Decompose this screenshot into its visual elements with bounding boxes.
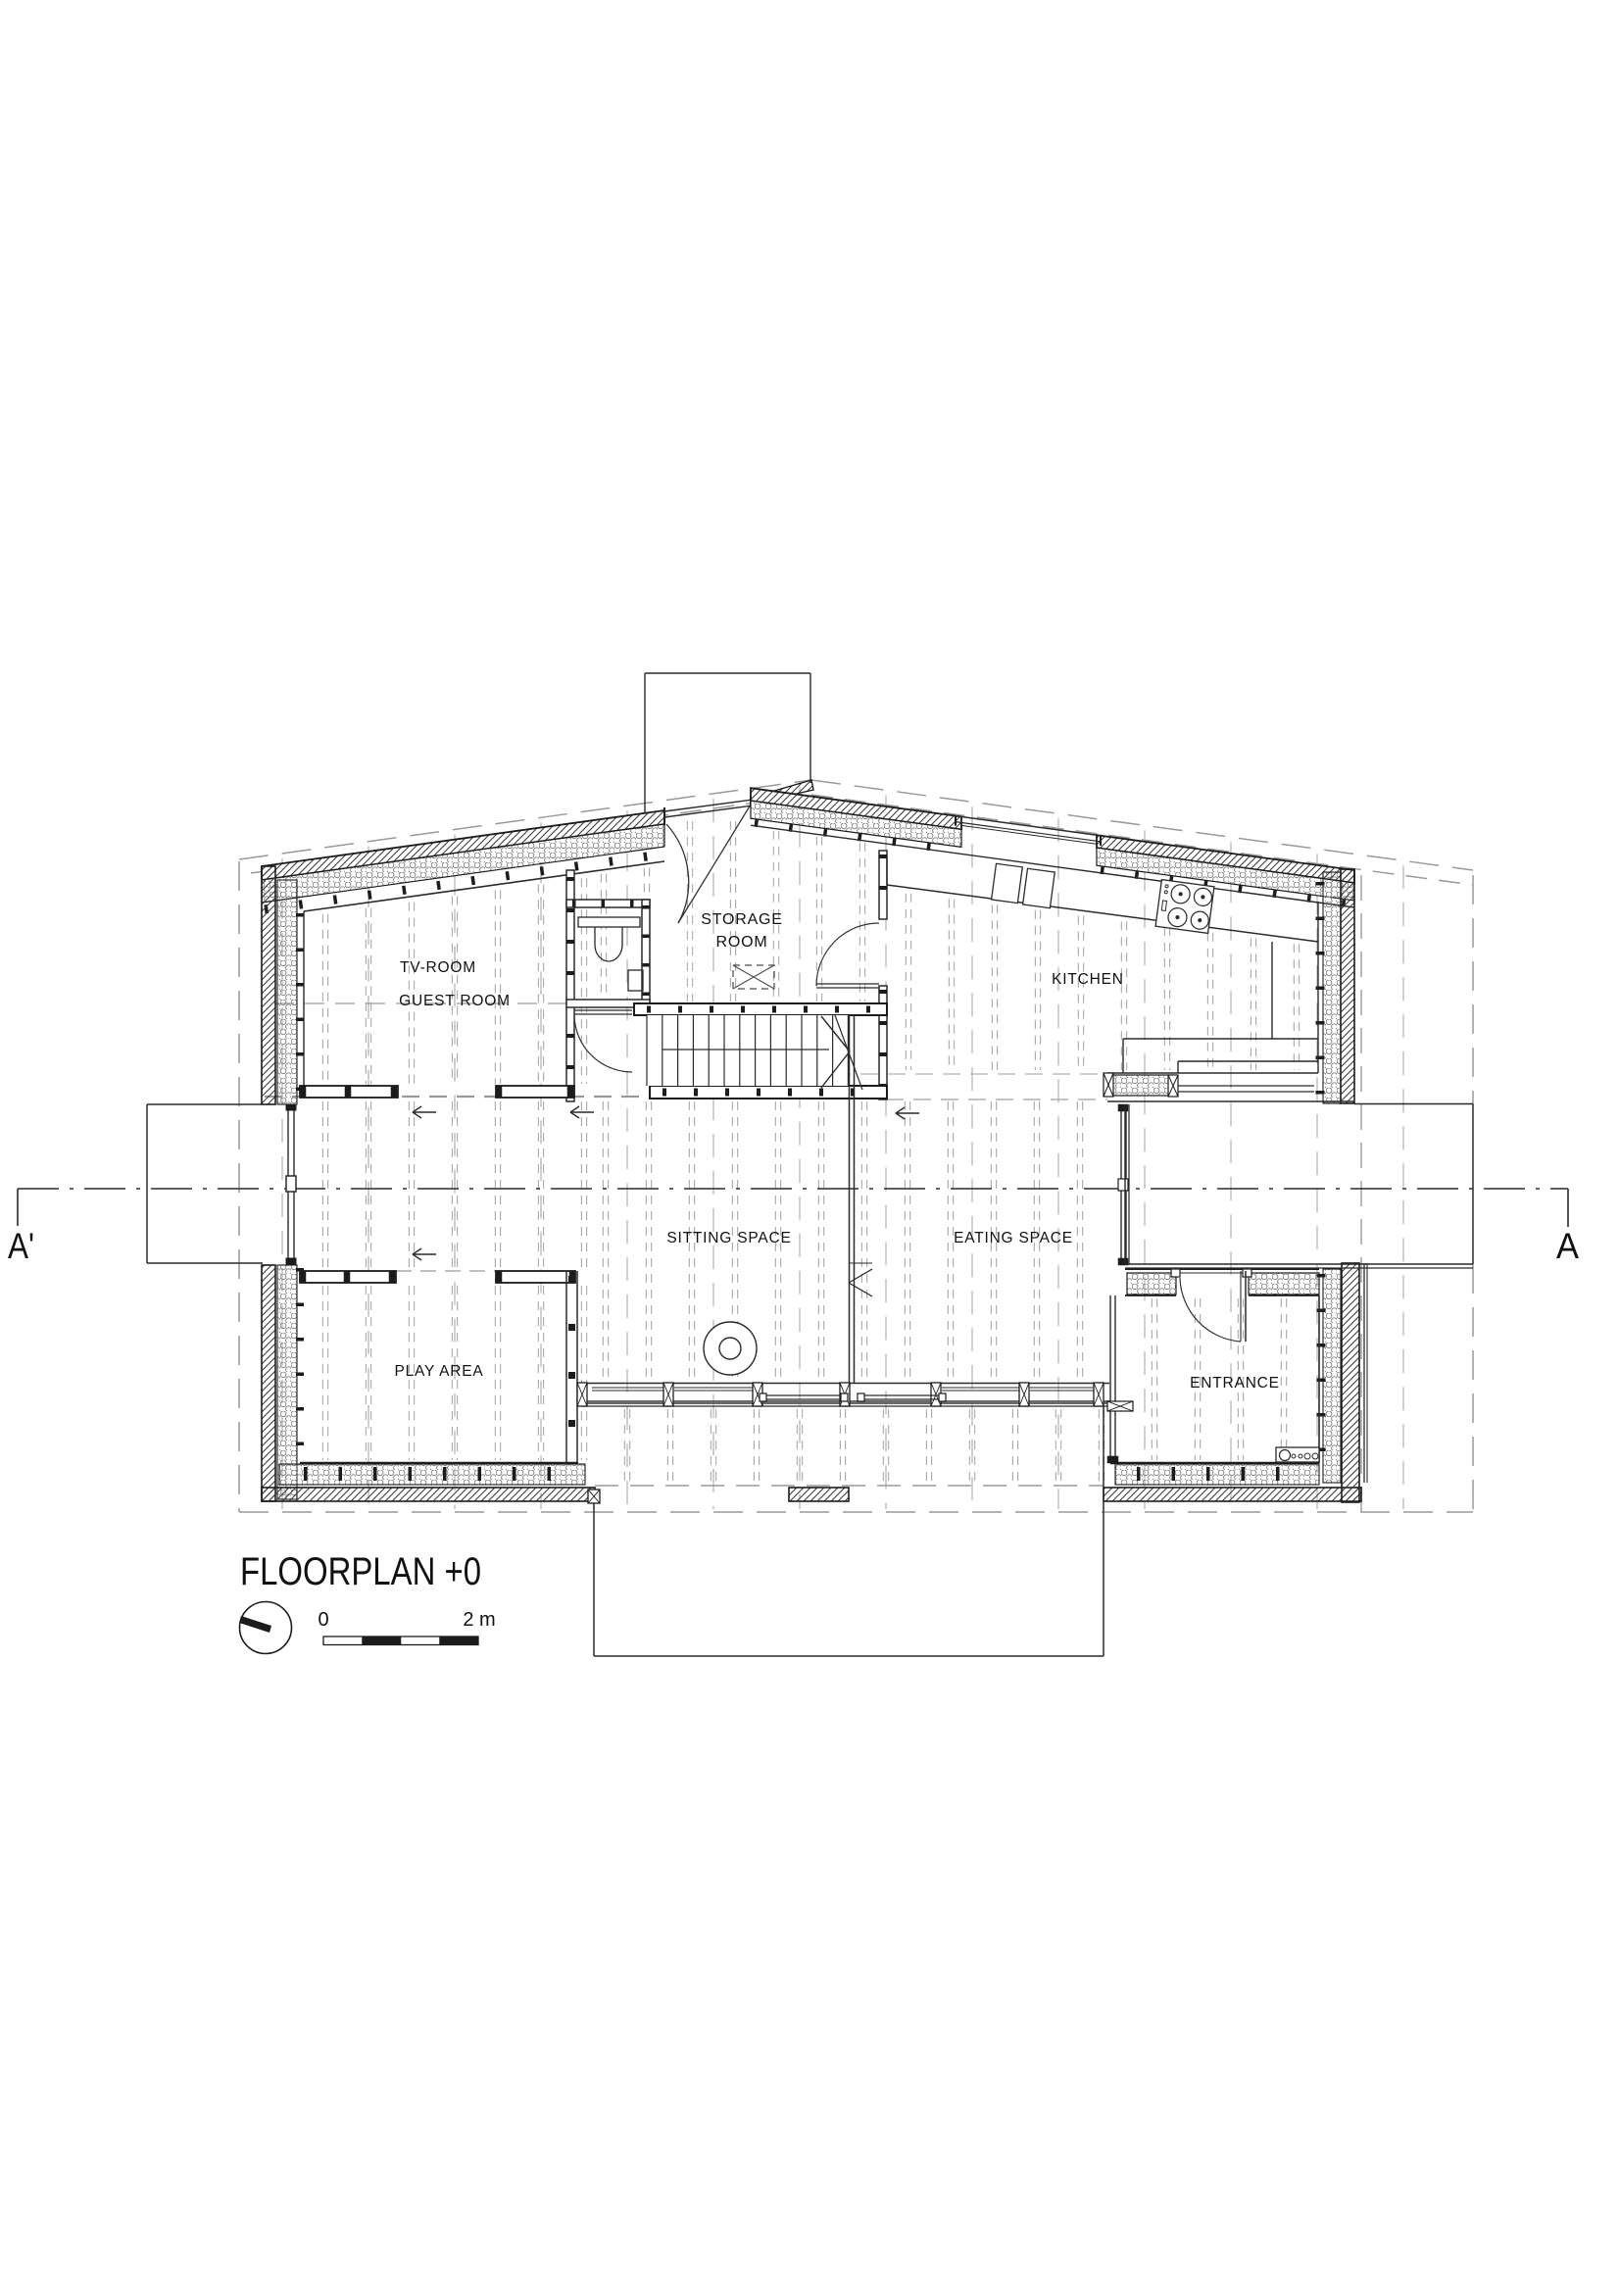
svg-text:FLOORPLAN +0: FLOORPLAN +0 [240, 1550, 481, 1593]
svg-text:ROOM: ROOM [716, 934, 768, 951]
svg-text:PLAY AREA: PLAY AREA [394, 1363, 483, 1380]
svg-text:EATING SPACE: EATING SPACE [954, 1230, 1073, 1246]
svg-text:A: A [1556, 1226, 1579, 1266]
svg-text:GUEST ROOM: GUEST ROOM [399, 993, 511, 1009]
svg-text:TV-ROOM: TV-ROOM [400, 959, 476, 976]
svg-text:2 m: 2 m [463, 1609, 495, 1631]
svg-text:ENTRANCE: ENTRANCE [1190, 1375, 1280, 1392]
svg-text:0: 0 [318, 1609, 328, 1631]
svg-text:STORAGE: STORAGE [701, 911, 783, 928]
svg-text:KITCHEN: KITCHEN [1052, 971, 1124, 988]
svg-text:A': A' [8, 1226, 34, 1266]
svg-text:SITTING SPACE: SITTING SPACE [666, 1230, 791, 1246]
